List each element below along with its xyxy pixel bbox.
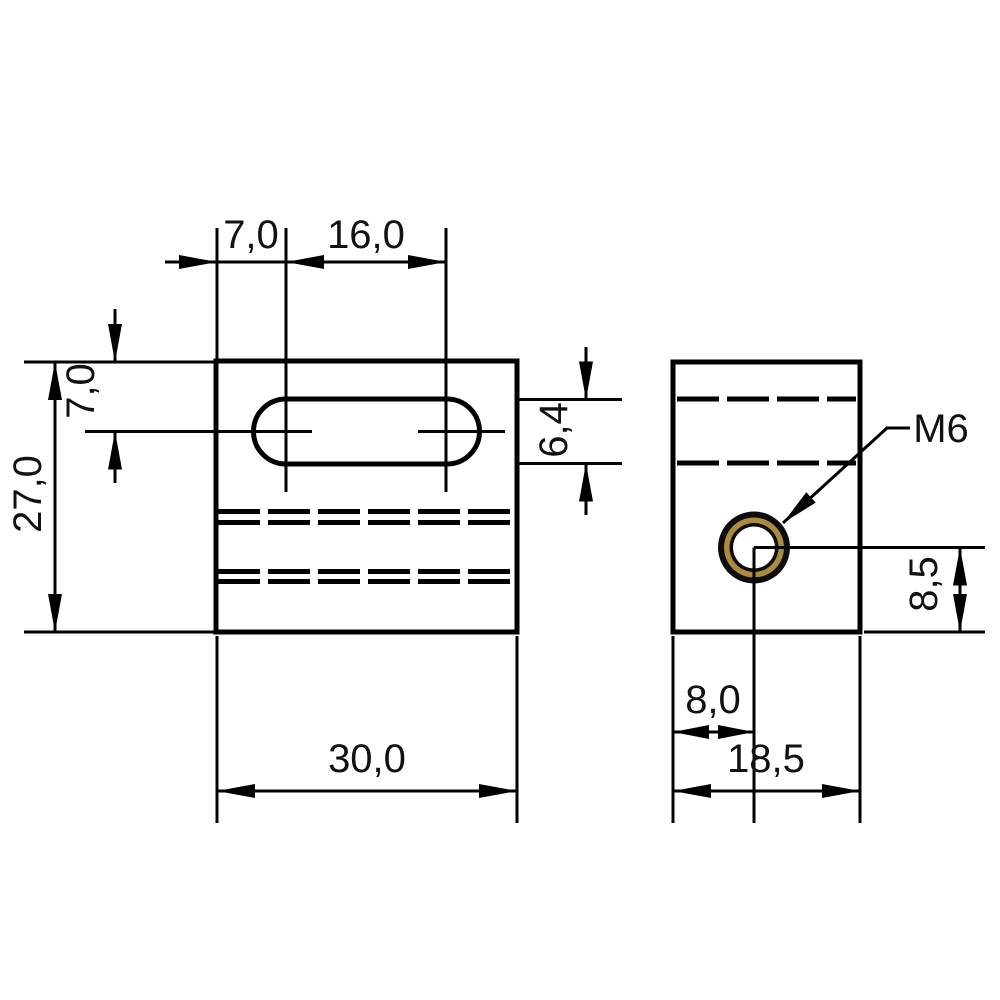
dim-label-slot-width: 6,4 bbox=[532, 402, 576, 458]
dim-label-slot-center-distance: 16,0 bbox=[327, 213, 405, 257]
dim-front-slot-width: 6,4 bbox=[519, 347, 622, 515]
arrowhead bbox=[953, 594, 967, 632]
arrowhead bbox=[953, 548, 967, 586]
arrowhead bbox=[48, 594, 62, 632]
side-view-body bbox=[673, 362, 860, 632]
dim-side-hole-height: 8,5 bbox=[864, 548, 985, 633]
arrowhead bbox=[217, 784, 255, 798]
dim-side-bottom: 8,0 18,5 bbox=[673, 636, 860, 823]
arrowhead bbox=[673, 725, 709, 739]
dim-label-slot-offset-top: 7,0 bbox=[59, 363, 103, 419]
dim-label-hole-from-bottom: 8,5 bbox=[902, 556, 946, 612]
arrowhead bbox=[408, 255, 446, 269]
arrowhead bbox=[108, 432, 122, 470]
arrowhead bbox=[179, 255, 217, 269]
arrowhead bbox=[579, 464, 593, 502]
dim-label-plate-width: 30,0 bbox=[328, 737, 406, 781]
front-view-hidden-edges bbox=[218, 512, 515, 582]
dim-label-depth: 18,5 bbox=[727, 737, 805, 781]
dim-label-hole-from-left: 8,0 bbox=[685, 678, 741, 722]
arrowhead bbox=[108, 324, 122, 362]
hole-center-lines bbox=[754, 548, 985, 824]
arrowhead bbox=[822, 784, 860, 798]
drawing-canvas: 7,0 16,0 27,0 7,0 6,4 30,0 bbox=[0, 0, 1000, 1000]
dim-front-left: 27,0 7,0 bbox=[6, 309, 214, 632]
technical-drawing: 7,0 16,0 27,0 7,0 6,4 30,0 bbox=[0, 0, 1000, 1000]
front-view bbox=[85, 361, 517, 632]
dim-label-plate-height: 27,0 bbox=[6, 455, 50, 533]
arrowhead bbox=[673, 784, 711, 798]
arrowhead bbox=[479, 784, 517, 798]
side-view-hidden-edges bbox=[677, 399, 856, 463]
arrowhead bbox=[579, 362, 593, 400]
dim-label-slot-offset-left: 7,0 bbox=[223, 213, 279, 257]
dim-front-width: 30,0 bbox=[217, 636, 517, 823]
arrowhead bbox=[286, 255, 324, 269]
thread-label: M6 bbox=[913, 407, 969, 451]
